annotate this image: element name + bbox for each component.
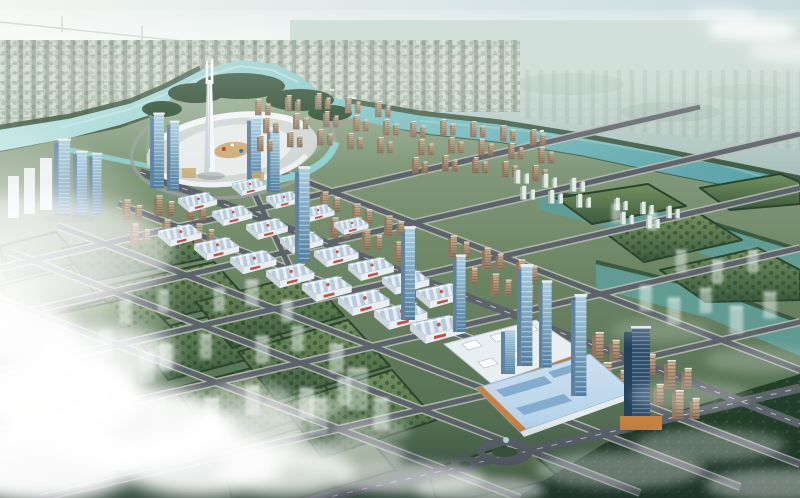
rendering-canvas <box>0 0 800 498</box>
atmospheric-haze <box>0 0 800 170</box>
aerial-city-rendering: Aerial bird's-eye architectural renderin… <box>0 0 800 498</box>
